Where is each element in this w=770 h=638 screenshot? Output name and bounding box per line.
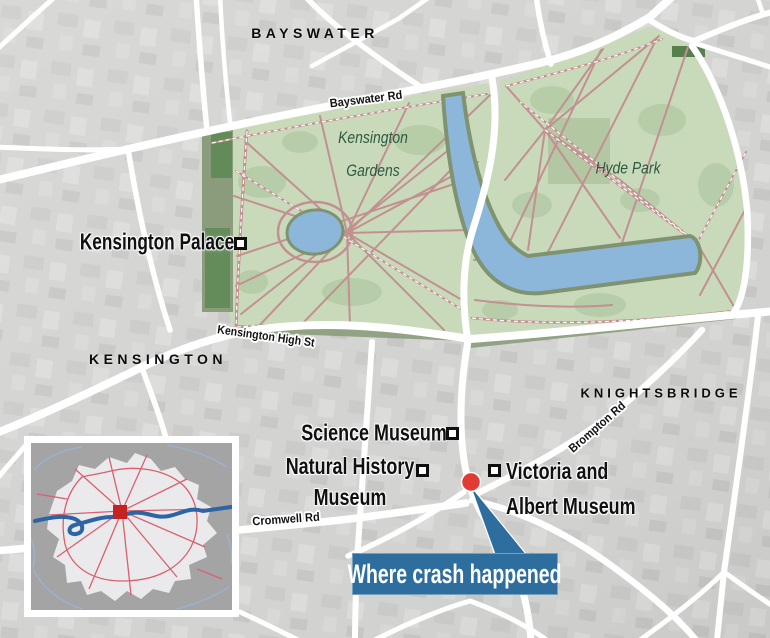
natural-history-museum-marker-icon xyxy=(416,464,429,477)
kensington-palace-marker-icon xyxy=(234,237,247,250)
inset-location-square xyxy=(113,505,127,519)
park-label-line2: Gardens xyxy=(338,154,408,187)
crash-marker-dot xyxy=(462,473,481,492)
poi-label-line2: Museum xyxy=(286,482,415,513)
poi-label-line2: Albert Museum xyxy=(506,489,636,524)
poi-label-kensington-palace: Kensington Palace xyxy=(80,227,234,258)
crash-callout: Where crash happened xyxy=(352,553,558,595)
area-label-kensington: KENSINGTON xyxy=(89,351,227,367)
science-museum-marker-icon xyxy=(446,427,459,440)
park-label-hyde-park: Hyde Park xyxy=(595,152,660,185)
poi-label-science-museum: Science Museum xyxy=(301,418,447,449)
area-label-knightsbridge: KNIGHTSBRIDGE xyxy=(580,386,741,401)
crash-callout-text: Where crash happened xyxy=(348,559,562,590)
crash-location-map: BAYSWATER KENSINGTON KNIGHTSBRIDGE Kensi… xyxy=(0,0,770,638)
park-label-line1: Kensington xyxy=(338,121,408,154)
victoria-albert-museum-marker-icon xyxy=(488,464,501,477)
poi-label-victoria-albert-museum: Victoria and Albert Museum xyxy=(506,454,636,524)
area-label-bayswater: BAYSWATER xyxy=(251,25,379,41)
poi-label-line1: Victoria and xyxy=(506,454,636,489)
poi-label-natural-history-museum: Natural History Museum xyxy=(286,451,415,513)
poi-label-line1: Natural History xyxy=(286,451,415,482)
park-label-kensington-gardens: Kensington Gardens xyxy=(338,121,408,187)
inset-london-map xyxy=(24,436,239,617)
